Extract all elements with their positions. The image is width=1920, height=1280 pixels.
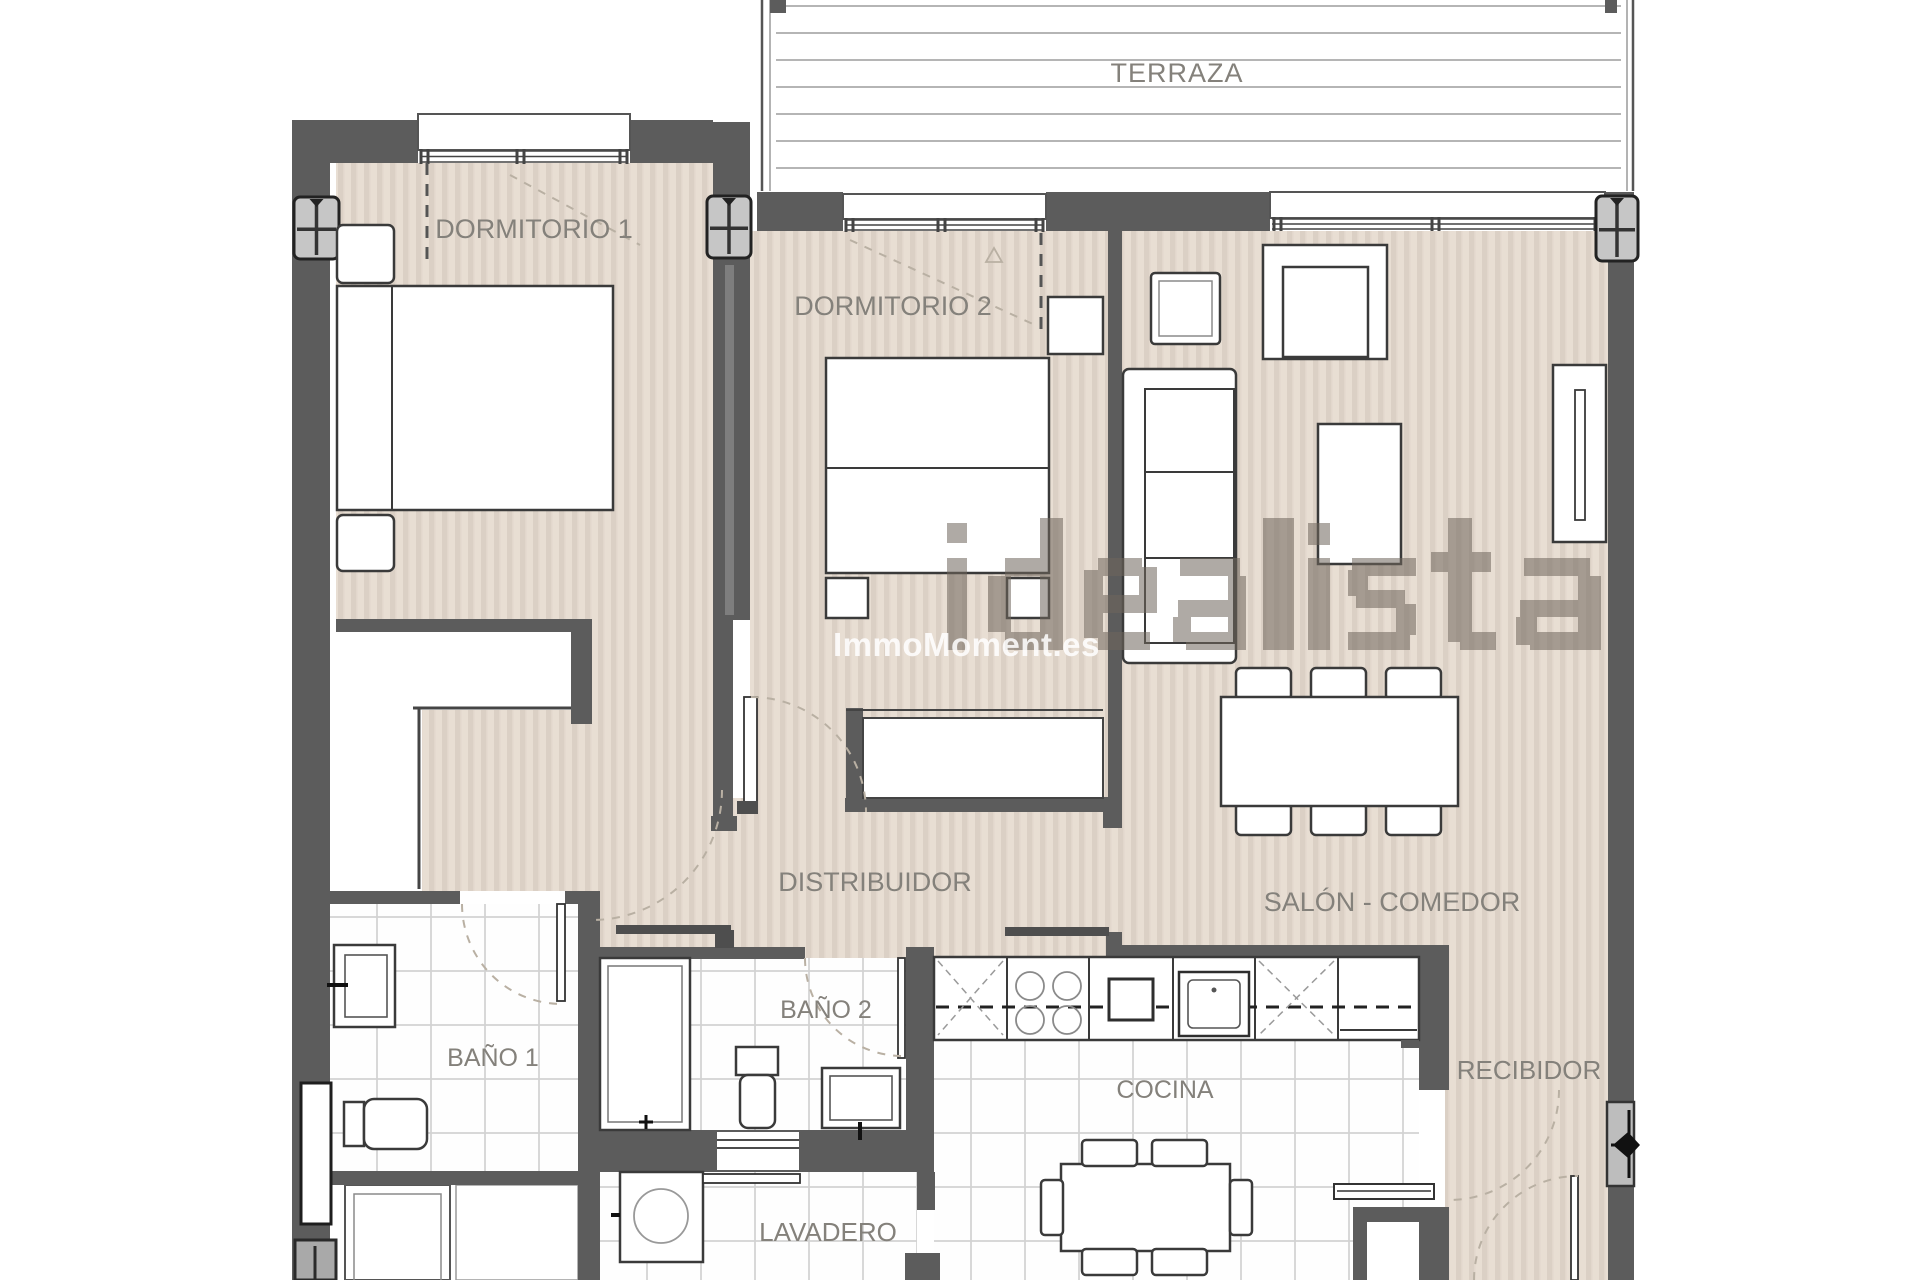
svg-text:TERRAZA: TERRAZA: [1110, 58, 1243, 88]
svg-text:DORMITORIO 1: DORMITORIO 1: [435, 214, 633, 244]
svg-text:ImmoMoment.es: ImmoMoment.es: [833, 626, 1100, 663]
svg-text:BAÑO 2: BAÑO 2: [780, 995, 872, 1024]
svg-text:DORMITORIO 2: DORMITORIO 2: [794, 291, 992, 321]
svg-text:BAÑO 1: BAÑO 1: [447, 1043, 539, 1072]
svg-text:DISTRIBUIDOR: DISTRIBUIDOR: [778, 867, 972, 897]
svg-text:COCINA: COCINA: [1116, 1076, 1214, 1104]
svg-text:RECIBIDOR: RECIBIDOR: [1457, 1055, 1601, 1085]
svg-text:LAVADERO: LAVADERO: [759, 1217, 897, 1247]
svg-text:SALÓN - COMEDOR: SALÓN - COMEDOR: [1264, 886, 1521, 917]
